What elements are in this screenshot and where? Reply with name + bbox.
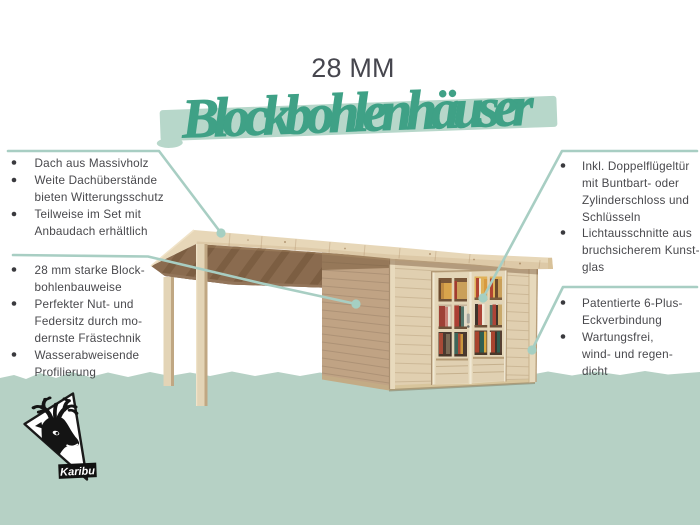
- svg-text:Lichtausschnitte aus: Lichtausschnitte aus: [582, 227, 692, 240]
- svg-text:Weite Dachüberstände: Weite Dachüberstände: [35, 174, 158, 187]
- svg-text:dicht: dicht: [582, 365, 608, 378]
- svg-text:bohlenbauweise: bohlenbauweise: [35, 281, 122, 294]
- svg-text:Blockbohlenhäuser: Blockbohlenhäuser: [180, 76, 536, 151]
- svg-text:Patentierte 6-Plus-: Patentierte 6-Plus-: [582, 297, 683, 310]
- svg-text:bruchsicherem Kunst-: bruchsicherem Kunst-: [582, 244, 700, 257]
- svg-text:dernste Frästechnik: dernste Frästechnik: [35, 332, 141, 345]
- svg-text:Eckverbindung: Eckverbindung: [582, 314, 662, 327]
- svg-text:Federsitz durch mo-: Federsitz durch mo-: [35, 315, 143, 328]
- svg-text:Schlüsseln: Schlüsseln: [582, 211, 641, 224]
- svg-text:glas: glas: [582, 261, 604, 274]
- svg-text:bieten Witterungsschutz: bieten Witterungsschutz: [35, 191, 164, 204]
- svg-text:Anbaudach erhältlich: Anbaudach erhältlich: [35, 225, 148, 238]
- svg-text:Profilierung: Profilierung: [35, 366, 97, 379]
- svg-text:mit Buntbart- oder: mit Buntbart- oder: [582, 177, 679, 190]
- svg-text:Zylinderschloss und: Zylinderschloss und: [582, 194, 689, 207]
- svg-text:Dach aus Massivholz: Dach aus Massivholz: [35, 157, 149, 170]
- svg-text:wind- und regen-: wind- und regen-: [581, 348, 673, 361]
- svg-text:Karibu: Karibu: [60, 465, 96, 479]
- svg-text:Wartungsfrei,: Wartungsfrei,: [582, 331, 654, 344]
- svg-text:Perfekter Nut- und: Perfekter Nut- und: [35, 298, 134, 311]
- svg-text:Teilweise im Set mit: Teilweise im Set mit: [35, 208, 142, 221]
- svg-text:Inkl. Doppelflügeltür: Inkl. Doppelflügeltür: [582, 160, 690, 173]
- svg-text:Wasserabweisende: Wasserabweisende: [35, 349, 140, 362]
- svg-text:28 MM: 28 MM: [311, 53, 395, 83]
- svg-text:28 mm starke Block-: 28 mm starke Block-: [35, 264, 145, 277]
